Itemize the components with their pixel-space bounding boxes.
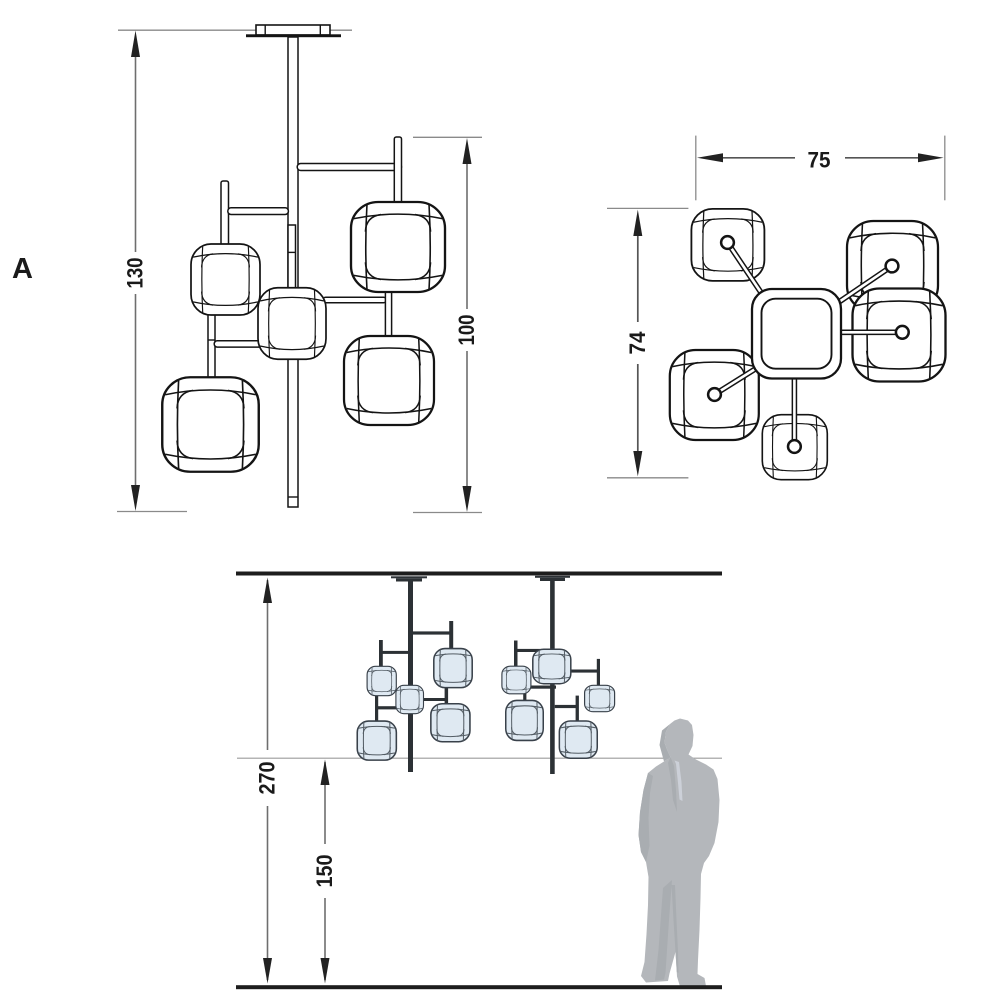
svg-text:270: 270 — [255, 762, 280, 795]
svg-text:150: 150 — [312, 855, 337, 888]
svg-text:74: 74 — [625, 331, 650, 355]
svg-text:A: A — [12, 253, 33, 285]
svg-text:75: 75 — [808, 148, 831, 173]
svg-text:130: 130 — [123, 258, 148, 289]
svg-text:100: 100 — [454, 315, 479, 346]
